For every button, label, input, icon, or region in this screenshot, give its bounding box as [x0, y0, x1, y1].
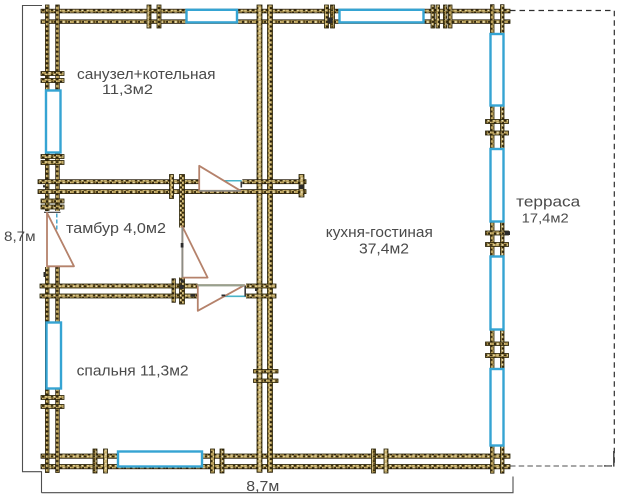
svg-text:кухня-гостиная: кухня-гостиная — [326, 224, 433, 241]
svg-text:тамбур 4,0м2: тамбур 4,0м2 — [66, 220, 166, 237]
svg-text:17,4м2: 17,4м2 — [522, 210, 569, 225]
svg-text:спальня 11,3м2: спальня 11,3м2 — [77, 363, 189, 380]
svg-text:санузел+котельная: санузел+котельная — [77, 66, 215, 83]
svg-text:37,4м2: 37,4м2 — [359, 241, 409, 258]
svg-text:терраса: терраса — [516, 194, 581, 211]
svg-text:8,7м: 8,7м — [4, 228, 36, 244]
svg-text:8,7м: 8,7м — [246, 478, 279, 495]
svg-text:11,3м2: 11,3м2 — [102, 82, 153, 98]
